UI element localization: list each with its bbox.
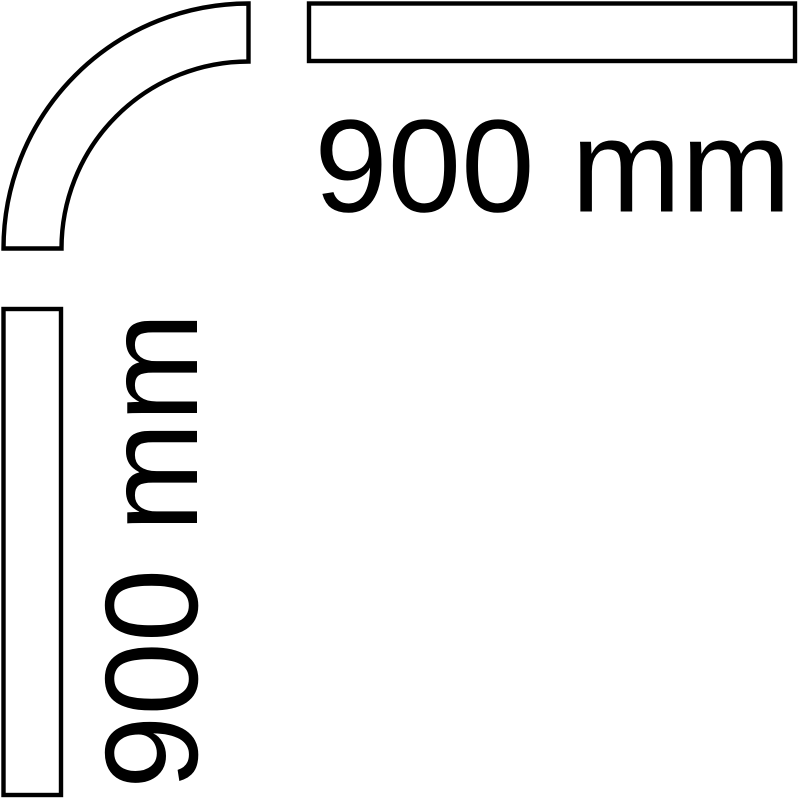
svg-text:900 mm: 900 mm — [78, 312, 225, 789]
svg-text:900 mm: 900 mm — [314, 93, 791, 240]
